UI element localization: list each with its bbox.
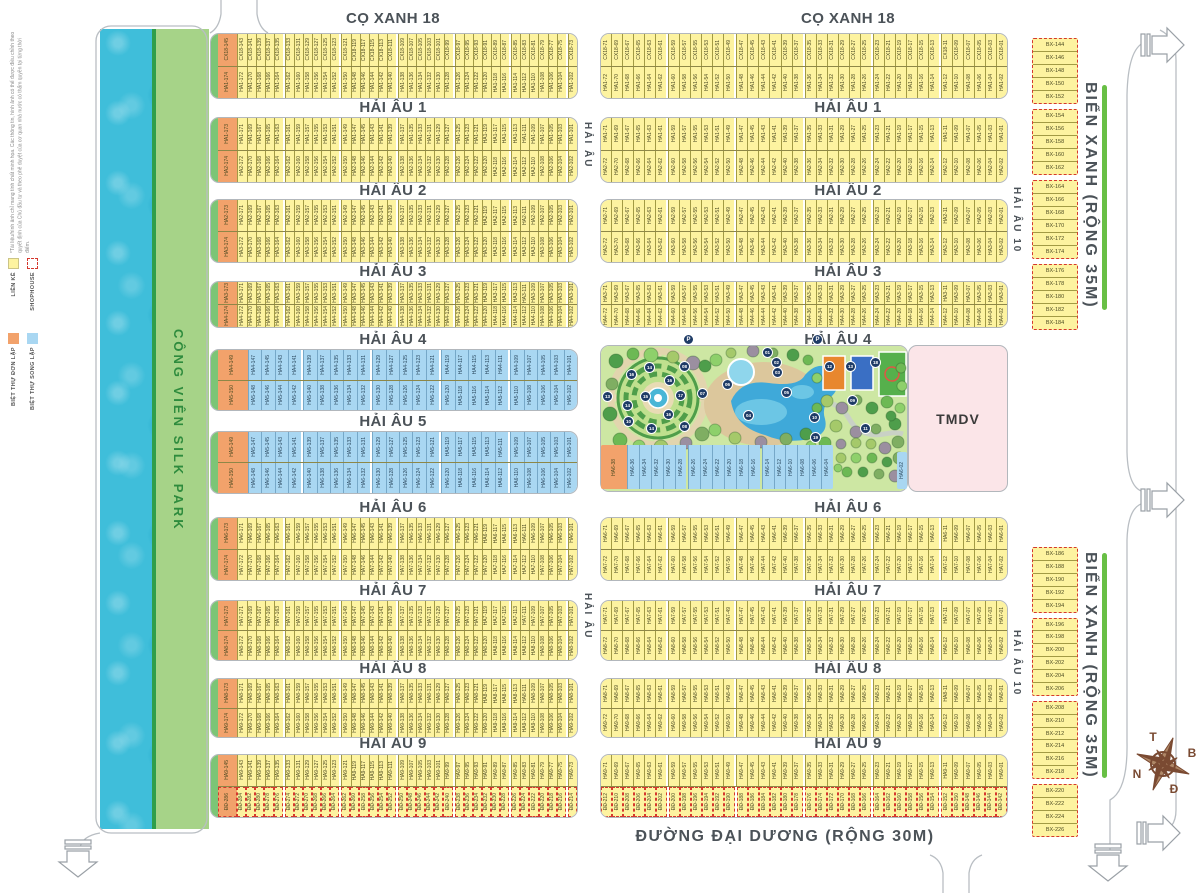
lot-HA4-131[interactable]: HA4-131 (357, 350, 370, 380)
lot-HA3-115[interactable]: HA3-115 (500, 282, 509, 304)
lot-HA3-142[interactable]: HA3-142 (378, 232, 387, 263)
lot-HA6-161[interactable]: HA6-161 (285, 518, 294, 549)
lot-HA4-138[interactable]: HA4-138 (398, 305, 407, 327)
lot-HA7-64[interactable]: HA7-64 (644, 550, 655, 581)
lot-HA7-123[interactable]: HA7-123 (464, 601, 473, 630)
lot-HA7-37[interactable]: HA7-37 (792, 601, 803, 630)
lot-HA7-120[interactable]: HA7-120 (482, 550, 491, 581)
lot-HA6-65[interactable]: HA6-65 (633, 518, 644, 549)
lot-CX18-143[interactable]: CX18-143 (237, 34, 246, 66)
lot-HA1-56[interactable]: HA1-56 (690, 67, 701, 99)
lot-HA5-130[interactable]: HA5-130 (372, 381, 385, 411)
lot-HA2-136[interactable]: HA2-136 (407, 151, 416, 183)
lot-BX-182[interactable]: BX-182 (1033, 303, 1077, 316)
lot-HA6-131[interactable]: HA6-131 (425, 518, 434, 549)
lot-HA6-26[interactable]: HA6-26 (688, 445, 700, 489)
lot-HA5-125[interactable]: HA5-125 (399, 432, 412, 462)
lot-HA4-149[interactable]: HA4-149 (218, 350, 248, 380)
lot-HA7-153[interactable]: HA7-153 (321, 601, 330, 630)
lot-HA6-143[interactable]: HA6-143 (369, 518, 378, 549)
lot-HA1-04[interactable]: HA1-04 (985, 67, 996, 99)
lot-HA4-116[interactable]: HA4-116 (500, 305, 509, 327)
lot-HA3-02[interactable]: HA3-02 (996, 232, 1007, 263)
lot-HA1-46[interactable]: HA1-46 (747, 67, 758, 99)
lot-HA6-18[interactable]: HA6-18 (736, 445, 748, 489)
lot-HA4-10[interactable]: HA4-10 (952, 305, 963, 327)
lot-HA6-151[interactable]: HA6-151 (330, 518, 339, 549)
lot-ĐĐ-240[interactable]: ĐĐ-240 (443, 787, 452, 818)
lot-HA6-17[interactable]: HA6-17 (906, 518, 917, 549)
lot-HA6-22[interactable]: HA6-22 (712, 445, 724, 489)
lot-HA9-30[interactable]: HA9-30 (838, 709, 849, 738)
lot-HA2-131[interactable]: HA2-131 (425, 200, 434, 231)
lot-CX18-95[interactable]: CX18-95 (464, 34, 473, 66)
lot-HA7-49[interactable]: HA7-49 (723, 601, 734, 630)
lot-HA7-34[interactable]: HA7-34 (816, 550, 827, 581)
lot-BX-186[interactable]: BX-186 (1033, 548, 1077, 560)
lot-HA1-34[interactable]: HA1-34 (816, 67, 827, 99)
lot-HA2-130[interactable]: HA2-130 (434, 151, 443, 183)
lot-HA1-17[interactable]: HA1-17 (906, 118, 917, 150)
lot-HA2-33[interactable]: HA2-33 (816, 200, 827, 231)
lot-HA5-142[interactable]: HA5-142 (288, 381, 301, 411)
lot-HA8-144[interactable]: HA8-144 (369, 631, 378, 660)
lot-HA8-31[interactable]: HA8-31 (827, 679, 838, 708)
lot-HA8-01[interactable]: HA8-01 (996, 679, 1007, 708)
lot-HA3-09[interactable]: HA3-09 (952, 282, 963, 304)
lot-HA4-135[interactable]: HA4-135 (330, 350, 343, 380)
lot-HA7-140[interactable]: HA7-140 (387, 550, 396, 581)
lot-HA9-139[interactable]: HA9-139 (256, 755, 265, 786)
lot-HA9-27[interactable]: HA9-27 (849, 755, 860, 786)
lot-HA5-110[interactable]: HA5-110 (510, 381, 523, 411)
lot-HA8-140[interactable]: HA8-140 (387, 631, 396, 660)
lot-HA9-137[interactable]: HA9-137 (265, 755, 274, 786)
lot-HA7-05[interactable]: HA7-05 (974, 601, 985, 630)
lot-HA1-171[interactable]: HA1-171 (237, 118, 246, 150)
lot-HA4-126[interactable]: HA4-126 (455, 305, 464, 327)
lot-ĐĐ-272[interactable]: ĐĐ-272 (294, 787, 303, 818)
lot-ĐĐ-150[interactable]: ĐĐ-150 (952, 787, 963, 818)
lot-HA1-147[interactable]: HA1-147 (351, 118, 360, 150)
lot-HA9-110[interactable]: HA9-110 (529, 709, 538, 738)
lot-CX18-13[interactable]: CX18-13 (928, 34, 939, 66)
lot-HA1-32[interactable]: HA1-32 (827, 67, 838, 99)
lot-HA8-64[interactable]: HA8-64 (644, 631, 655, 660)
lot-HA9-75[interactable]: HA9-75 (557, 755, 566, 786)
lot-HA8-174[interactable]: HA8-174 (218, 631, 237, 660)
lot-HA9-11[interactable]: HA9-11 (941, 755, 952, 786)
lot-ĐĐ-160[interactable]: ĐĐ-160 (895, 787, 906, 818)
lot-HA5-119[interactable]: HA5-119 (441, 432, 454, 462)
lot-HA2-25[interactable]: HA2-25 (860, 200, 871, 231)
lot-HA1-126[interactable]: HA1-126 (455, 67, 464, 99)
lot-HA8-13[interactable]: HA8-13 (928, 679, 939, 708)
lot-HA9-129[interactable]: HA9-129 (303, 755, 312, 786)
lot-HA4-104[interactable]: HA4-104 (557, 305, 566, 327)
lot-HA5-135[interactable]: HA5-135 (330, 432, 343, 462)
lot-HA3-69[interactable]: HA3-69 (611, 282, 622, 304)
lot-HA4-14[interactable]: HA4-14 (928, 305, 939, 327)
lot-HA1-153[interactable]: HA1-153 (321, 118, 330, 150)
lot-HA1-138[interactable]: HA1-138 (398, 67, 407, 99)
lot-BX-154[interactable]: BX-154 (1033, 110, 1077, 122)
lot-HA1-66[interactable]: HA1-66 (633, 67, 644, 99)
lot-HA1-60[interactable]: HA1-60 (668, 67, 679, 99)
lot-HA3-108[interactable]: HA3-108 (538, 232, 547, 263)
lot-HA8-30[interactable]: HA8-30 (838, 631, 849, 660)
lot-HA7-108[interactable]: HA7-108 (538, 550, 547, 581)
lot-HA6-07[interactable]: HA6-07 (963, 518, 974, 549)
lot-HA4-109[interactable]: HA4-109 (510, 350, 523, 380)
lot-HA1-172[interactable]: HA1-172 (237, 67, 246, 99)
lot-HA1-52[interactable]: HA1-52 (712, 67, 723, 99)
lot-HA1-157[interactable]: HA1-157 (303, 118, 312, 150)
lot-HA5-150[interactable]: HA5-150 (218, 381, 248, 411)
lot-HA6-31[interactable]: HA6-31 (827, 518, 838, 549)
lot-ĐĐ-220[interactable]: ĐĐ-220 (539, 787, 548, 818)
lot-CX18-73[interactable]: CX18-73 (568, 34, 577, 66)
lot-HA7-157[interactable]: HA7-157 (303, 601, 312, 630)
lot-HA9-73[interactable]: HA9-73 (568, 755, 577, 786)
lot-HA8-172[interactable]: HA8-172 (237, 631, 246, 660)
lot-HA8-153[interactable]: HA8-153 (321, 679, 330, 708)
lot-HA9-18[interactable]: HA9-18 (906, 709, 917, 738)
lot-BX-150[interactable]: BX-150 (1033, 77, 1077, 90)
lot-ĐĐ-190[interactable]: ĐĐ-190 (724, 787, 735, 818)
lot-ĐĐ-174[interactable]: ĐĐ-174 (816, 787, 827, 818)
lot-HA2-149[interactable]: HA2-149 (341, 200, 350, 231)
lot-HA1-140[interactable]: HA1-140 (387, 67, 396, 99)
lot-HA2-14[interactable]: HA2-14 (928, 151, 939, 183)
lot-HA6-14[interactable]: HA6-14 (762, 445, 774, 489)
lot-HA9-44[interactable]: HA9-44 (758, 709, 769, 738)
lot-HA1-115[interactable]: HA1-115 (500, 118, 509, 150)
lot-HA6-113[interactable]: HA6-113 (511, 518, 520, 549)
lot-BX-146[interactable]: BX-146 (1033, 51, 1077, 64)
lot-HA7-156[interactable]: HA7-156 (312, 550, 321, 581)
lot-BX-180[interactable]: BX-180 (1033, 290, 1077, 303)
lot-HA5-104[interactable]: HA5-104 (550, 381, 563, 411)
lot-HA1-48[interactable]: HA1-48 (736, 67, 747, 99)
lot-HA2-58[interactable]: HA2-58 (679, 151, 690, 183)
lot-HA9-166[interactable]: HA9-166 (265, 709, 274, 738)
lot-HA2-172[interactable]: HA2-172 (237, 151, 246, 183)
lot-HA8-06[interactable]: HA8-06 (974, 631, 985, 660)
lot-HA1-117[interactable]: HA1-117 (491, 118, 500, 150)
lot-HA4-50[interactable]: HA4-50 (723, 305, 734, 327)
lot-CX18-41[interactable]: CX18-41 (769, 34, 780, 66)
lot-HA9-121[interactable]: HA9-121 (341, 755, 350, 786)
lot-ĐĐ-216[interactable]: ĐĐ-216 (557, 787, 566, 818)
lot-HA9-47[interactable]: HA9-47 (736, 755, 747, 786)
lot-HA3-34[interactable]: HA3-34 (816, 232, 827, 263)
lot-HA6-23[interactable]: HA6-23 (873, 518, 884, 549)
lot-BX-196[interactable]: BX-196 (1033, 619, 1077, 631)
lot-ĐĐ-154[interactable]: ĐĐ-154 (928, 787, 939, 818)
lot-HA3-160[interactable]: HA3-160 (294, 232, 303, 263)
lot-HA4-44[interactable]: HA4-44 (758, 305, 769, 327)
lot-HA3-22[interactable]: HA3-22 (884, 232, 895, 263)
lot-HA6-59[interactable]: HA6-59 (668, 518, 679, 549)
lot-HA3-68[interactable]: HA3-68 (622, 232, 633, 263)
lot-HA7-41[interactable]: HA7-41 (769, 601, 780, 630)
lot-CX18-129[interactable]: CX18-129 (303, 34, 312, 66)
lot-HA7-133[interactable]: HA7-133 (416, 601, 425, 630)
lot-HA8-122[interactable]: HA8-122 (473, 631, 482, 660)
lot-BX-200[interactable]: BX-200 (1033, 643, 1077, 656)
lot-HA8-02[interactable]: HA8-02 (996, 631, 1007, 660)
lot-HA4-18[interactable]: HA4-18 (906, 305, 917, 327)
lot-HA1-144[interactable]: HA1-144 (369, 67, 378, 99)
lot-HA1-148[interactable]: HA1-148 (351, 67, 360, 99)
lot-HA2-121[interactable]: HA2-121 (473, 200, 482, 231)
lot-ĐĐ-264[interactable]: ĐĐ-264 (330, 787, 339, 818)
lot-HA5-105[interactable]: HA5-105 (537, 432, 550, 462)
lot-HA2-117[interactable]: HA2-117 (491, 200, 500, 231)
lot-HA2-162[interactable]: HA2-162 (285, 151, 294, 183)
lot-BX-214[interactable]: BX-214 (1033, 739, 1077, 752)
lot-HA9-56[interactable]: HA9-56 (690, 709, 701, 738)
lot-HA7-137[interactable]: HA7-137 (398, 601, 407, 630)
lot-HA3-109[interactable]: HA3-109 (529, 282, 538, 304)
lot-HA9-172[interactable]: HA9-172 (237, 709, 246, 738)
lot-HA9-03[interactable]: HA9-03 (985, 755, 996, 786)
lot-HA7-145[interactable]: HA7-145 (360, 601, 369, 630)
lot-HA6-21[interactable]: HA6-21 (884, 518, 895, 549)
lot-HA3-44[interactable]: HA3-44 (758, 232, 769, 263)
lot-HA2-161[interactable]: HA2-161 (285, 200, 294, 231)
lot-CX18-79[interactable]: CX18-79 (538, 34, 547, 66)
lot-HA8-161[interactable]: HA8-161 (285, 679, 294, 708)
lot-HA9-91[interactable]: HA9-91 (482, 755, 491, 786)
lot-HA8-42[interactable]: HA8-42 (769, 631, 780, 660)
lot-HA3-136[interactable]: HA3-136 (407, 232, 416, 263)
lot-CX18-117[interactable]: CX18-117 (360, 34, 369, 66)
lot-HA8-126[interactable]: HA8-126 (455, 631, 464, 660)
lot-HA6-130[interactable]: HA6-130 (372, 463, 385, 493)
lot-HA7-70[interactable]: HA7-70 (611, 550, 622, 581)
lot-HA9-85[interactable]: HA9-85 (511, 755, 520, 786)
lot-HA9-105[interactable]: HA9-105 (416, 755, 425, 786)
lot-HA8-156[interactable]: HA8-156 (312, 631, 321, 660)
lot-CX18-19[interactable]: CX18-19 (895, 34, 906, 66)
lot-BX-212[interactable]: BX-212 (1033, 727, 1077, 740)
lot-HA7-47[interactable]: HA7-47 (736, 601, 747, 630)
lot-HA6-69[interactable]: HA6-69 (611, 518, 622, 549)
lot-HA7-38[interactable]: HA7-38 (792, 550, 803, 581)
lot-HA2-37[interactable]: HA2-37 (792, 200, 803, 231)
lot-HA2-146[interactable]: HA2-146 (360, 151, 369, 183)
lot-HA1-131[interactable]: HA1-131 (425, 118, 434, 150)
lot-HA8-03[interactable]: HA8-03 (985, 679, 996, 708)
lot-HA4-40[interactable]: HA4-40 (781, 305, 792, 327)
lot-HA3-124[interactable]: HA3-124 (464, 232, 473, 263)
lot-HA9-141[interactable]: HA9-141 (247, 755, 256, 786)
lot-HA7-168[interactable]: HA7-168 (256, 550, 265, 581)
lot-HA4-140[interactable]: HA4-140 (387, 305, 396, 327)
lot-HA2-55[interactable]: HA2-55 (690, 200, 701, 231)
lot-HA7-111[interactable]: HA7-111 (520, 601, 529, 630)
lot-HA5-139[interactable]: HA5-139 (303, 432, 316, 462)
lot-HA8-169[interactable]: HA8-169 (247, 679, 256, 708)
lot-HA2-18[interactable]: HA2-18 (906, 151, 917, 183)
lot-HA8-105[interactable]: HA8-105 (548, 679, 557, 708)
lot-HA9-05[interactable]: HA9-05 (974, 755, 985, 786)
lot-CX18-105[interactable]: CX18-105 (416, 34, 425, 66)
lot-ĐĐ-152[interactable]: ĐĐ-152 (941, 787, 952, 818)
lot-HA8-135[interactable]: HA8-135 (407, 679, 416, 708)
lot-HA2-113[interactable]: HA2-113 (511, 200, 520, 231)
lot-HA8-152[interactable]: HA8-152 (330, 631, 339, 660)
lot-HA1-33[interactable]: HA1-33 (816, 118, 827, 150)
lot-HA6-157[interactable]: HA6-157 (303, 518, 312, 549)
lot-HA3-51[interactable]: HA3-51 (712, 282, 723, 304)
lot-HA7-174[interactable]: HA7-174 (218, 550, 237, 581)
lot-HA7-11[interactable]: HA7-11 (941, 601, 952, 630)
lot-ĐĐ-260[interactable]: ĐĐ-260 (350, 787, 359, 818)
lot-HA1-50[interactable]: HA1-50 (723, 67, 734, 99)
lot-HA7-105[interactable]: HA7-105 (548, 601, 557, 630)
lot-HA4-68[interactable]: HA4-68 (622, 305, 633, 327)
lot-HA2-167[interactable]: HA2-167 (256, 200, 265, 231)
lot-HA3-126[interactable]: HA3-126 (455, 232, 464, 263)
lot-HA8-168[interactable]: HA8-168 (256, 631, 265, 660)
lot-HA9-50[interactable]: HA9-50 (723, 709, 734, 738)
lot-HA2-44[interactable]: HA2-44 (758, 151, 769, 183)
lot-HA7-63[interactable]: HA7-63 (644, 601, 655, 630)
lot-HA8-07[interactable]: HA8-07 (963, 679, 974, 708)
lot-HA2-164[interactable]: HA2-164 (274, 151, 283, 183)
lot-HA7-58[interactable]: HA7-58 (679, 550, 690, 581)
lot-HA7-115[interactable]: HA7-115 (500, 601, 509, 630)
lot-CX18-85[interactable]: CX18-85 (511, 34, 520, 66)
lot-HA9-54[interactable]: HA9-54 (701, 709, 712, 738)
lot-HA3-61[interactable]: HA3-61 (655, 282, 666, 304)
lot-HA3-53[interactable]: HA3-53 (701, 282, 712, 304)
lot-HA3-156[interactable]: HA3-156 (312, 232, 321, 263)
lot-HA3-37[interactable]: HA3-37 (792, 282, 803, 304)
lot-HA5-106[interactable]: HA5-106 (537, 381, 550, 411)
lot-HA1-43[interactable]: HA1-43 (758, 118, 769, 150)
lot-CX18-23[interactable]: CX18-23 (873, 34, 884, 66)
lot-HA9-114[interactable]: HA9-114 (511, 709, 520, 738)
lot-ĐĐ-262[interactable]: ĐĐ-262 (341, 787, 350, 818)
lot-HA4-58[interactable]: HA4-58 (679, 305, 690, 327)
lot-BX-226[interactable]: BX-226 (1033, 823, 1077, 836)
lot-HA8-101[interactable]: HA8-101 (568, 679, 577, 708)
lot-HA4-117[interactable]: HA4-117 (455, 350, 468, 380)
lot-HA7-29[interactable]: HA7-29 (838, 601, 849, 630)
lot-HA9-37[interactable]: HA9-37 (792, 755, 803, 786)
lot-HA2-134[interactable]: HA2-134 (416, 151, 425, 183)
lot-HA9-69[interactable]: HA9-69 (611, 755, 622, 786)
lot-HA4-152[interactable]: HA4-152 (330, 305, 339, 327)
lot-HA7-25[interactable]: HA7-25 (860, 601, 871, 630)
lot-HA6-111[interactable]: HA6-111 (520, 518, 529, 549)
lot-CX18-99[interactable]: CX18-99 (444, 34, 453, 66)
lot-ĐĐ-242[interactable]: ĐĐ-242 (434, 787, 443, 818)
lot-HA3-165[interactable]: HA3-165 (265, 282, 274, 304)
lot-HA7-165[interactable]: HA7-165 (265, 601, 274, 630)
lot-HA9-67[interactable]: HA9-67 (622, 755, 633, 786)
lot-HA4-121[interactable]: HA4-121 (426, 350, 439, 380)
lot-HA8-111[interactable]: HA8-111 (520, 679, 529, 708)
lot-CX18-133[interactable]: CX18-133 (285, 34, 294, 66)
lot-HA1-132[interactable]: HA1-132 (425, 67, 434, 99)
lot-HA2-12[interactable]: HA2-12 (941, 151, 952, 183)
lot-HA1-06[interactable]: HA1-06 (974, 67, 985, 99)
lot-HA6-122[interactable]: HA6-122 (426, 463, 439, 493)
lot-HA6-119[interactable]: HA6-119 (482, 518, 491, 549)
lot-CX18-89[interactable]: CX18-89 (491, 34, 500, 66)
lot-HA2-03[interactable]: HA2-03 (985, 200, 996, 231)
lot-HA4-146[interactable]: HA4-146 (360, 305, 369, 327)
lot-HA2-09[interactable]: HA2-09 (952, 200, 963, 231)
lot-HA3-08[interactable]: HA3-08 (963, 232, 974, 263)
lot-HA6-110[interactable]: HA6-110 (510, 463, 523, 493)
lot-HA3-58[interactable]: HA3-58 (679, 232, 690, 263)
lot-CX18-121[interactable]: CX18-121 (341, 34, 350, 66)
lot-HA3-64[interactable]: HA3-64 (644, 232, 655, 263)
lot-HA6-35[interactable]: HA6-35 (805, 518, 816, 549)
lot-HA2-112[interactable]: HA2-112 (520, 151, 529, 183)
lot-HA3-116[interactable]: HA3-116 (500, 232, 509, 263)
lot-HA6-29[interactable]: HA6-29 (838, 518, 849, 549)
lot-BX-178[interactable]: BX-178 (1033, 277, 1077, 290)
lot-HA5-129[interactable]: HA5-129 (372, 432, 385, 462)
lot-HA2-07[interactable]: HA2-07 (963, 200, 974, 231)
lot-HA7-151[interactable]: HA7-151 (330, 601, 339, 630)
lot-HA1-141[interactable]: HA1-141 (378, 118, 387, 150)
lot-BX-176[interactable]: BX-176 (1033, 265, 1077, 277)
lot-HA7-130[interactable]: HA7-130 (434, 550, 443, 581)
lot-HA8-173[interactable]: HA8-173 (218, 679, 237, 708)
lot-HA1-63[interactable]: HA1-63 (644, 118, 655, 150)
lot-HA3-25[interactable]: HA3-25 (860, 282, 871, 304)
lot-HA5-108[interactable]: HA5-108 (524, 381, 537, 411)
lot-HA3-67[interactable]: HA3-67 (622, 282, 633, 304)
lot-HA9-32[interactable]: HA9-32 (827, 709, 838, 738)
lot-HA9-28[interactable]: HA9-28 (849, 709, 860, 738)
lot-HA9-138[interactable]: HA9-138 (398, 709, 407, 738)
lot-HA8-127[interactable]: HA8-127 (444, 679, 453, 708)
lot-HA4-42[interactable]: HA4-42 (769, 305, 780, 327)
lot-ĐĐ-212[interactable]: ĐĐ-212 (601, 787, 612, 818)
lot-HA6-55[interactable]: HA6-55 (690, 518, 701, 549)
lot-HA8-138[interactable]: HA8-138 (398, 631, 407, 660)
lot-HA9-70[interactable]: HA9-70 (611, 709, 622, 738)
lot-ĐĐ-258[interactable]: ĐĐ-258 (359, 787, 368, 818)
lot-HA6-126[interactable]: HA6-126 (399, 463, 412, 493)
lot-HA9-131[interactable]: HA9-131 (294, 755, 303, 786)
lot-HA2-53[interactable]: HA2-53 (701, 200, 712, 231)
lot-HA1-109[interactable]: HA1-109 (529, 118, 538, 150)
lot-HA3-14[interactable]: HA3-14 (928, 232, 939, 263)
lot-HA1-58[interactable]: HA1-58 (679, 67, 690, 99)
lot-BX-202[interactable]: BX-202 (1033, 656, 1077, 669)
lot-HA4-30[interactable]: HA4-30 (838, 305, 849, 327)
lot-HA6-141[interactable]: HA6-141 (378, 518, 387, 549)
lot-HA8-155[interactable]: HA8-155 (312, 679, 321, 708)
lot-HA8-102[interactable]: HA8-102 (568, 631, 577, 660)
lot-HA6-144[interactable]: HA6-144 (275, 463, 288, 493)
lot-ĐĐ-274[interactable]: ĐĐ-274 (285, 787, 294, 818)
lot-ĐĐ-208[interactable]: ĐĐ-208 (623, 787, 634, 818)
lot-HA1-14[interactable]: HA1-14 (928, 67, 939, 99)
lot-HA9-39[interactable]: HA9-39 (781, 755, 792, 786)
lot-HA9-117[interactable]: HA9-117 (360, 755, 369, 786)
